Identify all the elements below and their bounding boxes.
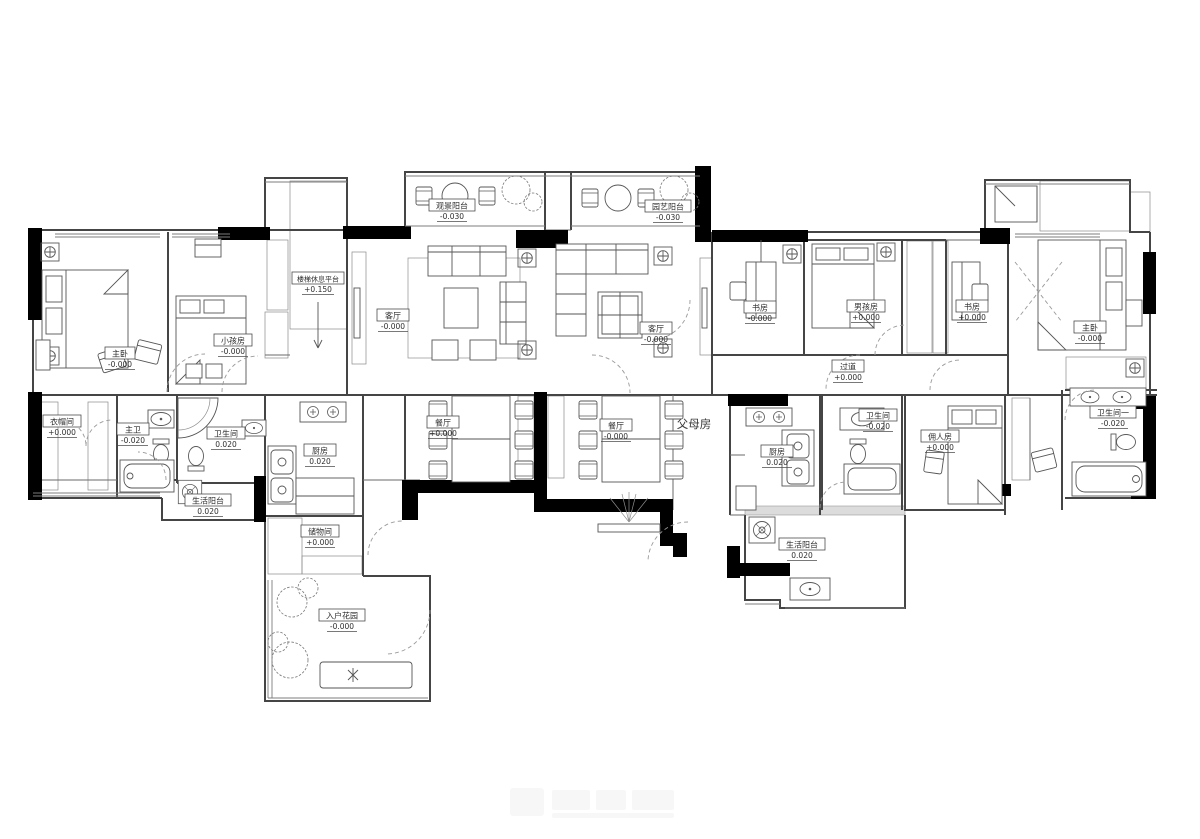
room-elevation: +0.000 bbox=[852, 313, 880, 322]
room-elevation: -0.020 bbox=[1101, 419, 1125, 428]
dining-left-set bbox=[429, 396, 533, 482]
stair-right-hatch bbox=[907, 241, 932, 353]
room-elevation: -0.000 bbox=[221, 347, 245, 356]
door-arc bbox=[592, 355, 630, 393]
room-name: 餐厅 bbox=[435, 419, 451, 428]
room-name: 储物间 bbox=[308, 527, 332, 537]
wall-black bbox=[28, 228, 42, 320]
room-elevation: +0.000 bbox=[834, 373, 862, 382]
room-name: 小孩房 bbox=[221, 336, 245, 346]
room-elevation: 0.020 bbox=[197, 507, 219, 516]
room-elevation: -0.030 bbox=[656, 213, 680, 222]
room-name: 客厅 bbox=[385, 311, 401, 321]
bench-kids bbox=[195, 239, 221, 257]
door-arc bbox=[386, 610, 430, 654]
entry-garden-set bbox=[268, 578, 412, 688]
room-elevation: +0.150 bbox=[304, 285, 332, 294]
corridor-armchair bbox=[1031, 448, 1057, 473]
stair-direction-arrow bbox=[314, 302, 322, 348]
room-elevation: +0.000 bbox=[48, 428, 76, 437]
wall-black bbox=[1143, 252, 1156, 314]
room-label-dining-right: 餐厅 -0.000 bbox=[600, 419, 632, 442]
door-arc bbox=[875, 325, 905, 355]
wall-black bbox=[218, 227, 270, 240]
door-arc bbox=[368, 521, 402, 555]
corner-table-fixture bbox=[518, 249, 536, 267]
room-label-maid-room: 佣人房 +0.000 bbox=[921, 430, 959, 453]
room-name: 主卧 bbox=[1082, 323, 1098, 333]
room-name: 生活阳台 bbox=[786, 540, 818, 550]
room-elevation: 0.020 bbox=[215, 440, 237, 449]
floor-plan-drawing: 主卧 -0.000 小孩房 -0.000 楼梯休息平台 +0.150 观景阳台 … bbox=[0, 0, 1200, 839]
cloakroom-wardrobe-b bbox=[88, 402, 108, 490]
balcony-wall-fill bbox=[745, 506, 905, 515]
wall-black bbox=[728, 394, 788, 406]
room-name: 厨房 bbox=[312, 446, 328, 456]
room-label-garden-balcony: 园艺阳台 -0.030 bbox=[645, 200, 691, 223]
room-label-living-right: 客厅 -0.000 bbox=[640, 322, 672, 345]
room-label-entry-garden: 入户花园 -0.000 bbox=[319, 609, 365, 632]
room-name: 主卫 bbox=[125, 425, 141, 435]
room-name: 佣人房 bbox=[928, 432, 952, 442]
wall-black bbox=[343, 226, 411, 239]
maid-room-set bbox=[924, 406, 1002, 504]
top-right-shaft bbox=[1130, 192, 1150, 232]
room-label-dining-left: 餐厅 +0.000 bbox=[427, 416, 459, 439]
room-label-hallway: 过道 +0.000 bbox=[832, 360, 864, 383]
room-label-stair-landing: 楼梯休息平台 +0.150 bbox=[292, 272, 344, 295]
shaft-hatch bbox=[267, 240, 288, 310]
wall-black bbox=[547, 499, 673, 512]
wall-black bbox=[534, 392, 547, 512]
room-elevation: +0.000 bbox=[429, 429, 457, 438]
room-elevation: -0.000 bbox=[644, 335, 668, 344]
living-right-set bbox=[556, 244, 707, 338]
floor-plan-canvas: 主卧 -0.000 小孩房 -0.000 楼梯休息平台 +0.150 观景阳台 … bbox=[0, 0, 1200, 839]
stair-terrace-hatch bbox=[290, 181, 347, 329]
furniture-layer bbox=[36, 176, 1146, 688]
room-elevation: -0.000 bbox=[748, 314, 772, 323]
room-name: 男孩房 bbox=[854, 302, 878, 312]
living-left-set bbox=[354, 246, 526, 360]
wall-black bbox=[673, 533, 687, 557]
room-label-master-bath: 主卫 -0.020 bbox=[117, 423, 149, 446]
room-elevation: -0.030 bbox=[440, 212, 464, 221]
room-elevation: -0.000 bbox=[330, 622, 354, 631]
room-name: 厨房 bbox=[769, 447, 785, 457]
ceiling-fixture bbox=[1126, 359, 1144, 377]
room-elevation: -0.020 bbox=[121, 436, 145, 445]
room-label-study-right: 书房 +0.000 bbox=[956, 300, 988, 323]
room-name: 书房 bbox=[752, 303, 768, 313]
room-label-service-balcony-left: 生活阳台 0.020 bbox=[185, 494, 231, 517]
door-arc bbox=[820, 482, 846, 508]
top-right-balcony-hatch bbox=[1040, 181, 1130, 231]
room-label-bath-one: 卫生间一 -0.020 bbox=[1090, 406, 1136, 429]
room-elevation: 0.020 bbox=[309, 457, 331, 466]
room-label-living-left: 客厅 -0.000 bbox=[377, 309, 409, 332]
room-name: 观景阳台 bbox=[436, 201, 468, 211]
room-name: 书房 bbox=[964, 302, 980, 312]
stair-treads bbox=[265, 312, 288, 358]
room-label-kitchen-left: 厨房 0.020 bbox=[304, 444, 336, 467]
corner-table-fixture bbox=[654, 247, 672, 265]
wall-black bbox=[980, 228, 1010, 244]
parents-room-annotation: 父母房 bbox=[677, 417, 712, 431]
room-label-service-balcony-right: 生活阳台 0.020 bbox=[779, 538, 825, 561]
room-label-view-balcony: 观景阳台 -0.030 bbox=[429, 199, 475, 222]
room-name: 餐厅 bbox=[608, 422, 624, 431]
room-name: 园艺阳台 bbox=[652, 202, 684, 212]
room-elevation: 0.020 bbox=[791, 551, 813, 560]
storage-cabinet-a bbox=[268, 518, 302, 574]
wall-black bbox=[254, 476, 266, 522]
room-label-master-right: 主卧 -0.000 bbox=[1074, 321, 1106, 344]
room-label-storage: 储物间 +0.000 bbox=[301, 525, 339, 548]
wall-black bbox=[740, 563, 790, 576]
room-elevation: -0.000 bbox=[108, 360, 132, 369]
room-label-bath-left: 卫生间 0.020 bbox=[207, 427, 245, 450]
wall-black bbox=[28, 392, 42, 500]
room-name: 入户花园 bbox=[326, 611, 358, 621]
room-name: 卫生间一 bbox=[1097, 408, 1129, 418]
service-balcony-right-set bbox=[749, 517, 830, 600]
ceiling-fixture bbox=[877, 243, 895, 261]
door-arc bbox=[930, 360, 960, 390]
room-name: 主卧 bbox=[112, 349, 128, 359]
room-elevation: -0.000 bbox=[1078, 334, 1102, 343]
watermark bbox=[510, 788, 674, 818]
wall-black bbox=[712, 230, 808, 242]
room-elevation: -0.000 bbox=[604, 432, 628, 441]
room-label-boys-room: 男孩房 +0.000 bbox=[847, 300, 885, 323]
room-name: 生活阳台 bbox=[192, 496, 224, 506]
wall-black bbox=[402, 480, 418, 520]
storage-cabinet-b bbox=[302, 556, 362, 574]
room-label-master-left: 主卧 -0.000 bbox=[105, 347, 135, 370]
wall-black bbox=[695, 166, 711, 242]
ceiling-fixture bbox=[41, 243, 59, 261]
bath-one-set bbox=[1070, 388, 1146, 496]
right-corridor-cabinet bbox=[1012, 398, 1030, 480]
top-right-terrace-set bbox=[995, 186, 1037, 222]
wall-black bbox=[727, 546, 740, 578]
room-name: 楼梯休息平台 bbox=[297, 275, 339, 284]
room-name: 卫生间 bbox=[214, 429, 238, 439]
room-label-cloakroom: 衣帽间 +0.000 bbox=[43, 415, 81, 438]
room-elevation: -0.020 bbox=[866, 422, 890, 431]
room-name: 衣帽间 bbox=[50, 417, 74, 427]
room-elevation: +0.000 bbox=[306, 538, 334, 547]
ceiling-fixture bbox=[783, 245, 801, 263]
room-name: 客厅 bbox=[648, 324, 664, 334]
room-name: 卫生间 bbox=[866, 411, 890, 421]
room-label-study-left: 书房 -0.000 bbox=[744, 301, 776, 324]
room-elevation: +0.000 bbox=[926, 443, 954, 452]
room-name: 过道 bbox=[840, 362, 856, 372]
room-elevation: 0.020 bbox=[766, 458, 788, 467]
room-elevation: -0.000 bbox=[381, 322, 405, 331]
room-elevation: +0.000 bbox=[958, 313, 986, 322]
dining-cabinet-b bbox=[548, 396, 564, 478]
